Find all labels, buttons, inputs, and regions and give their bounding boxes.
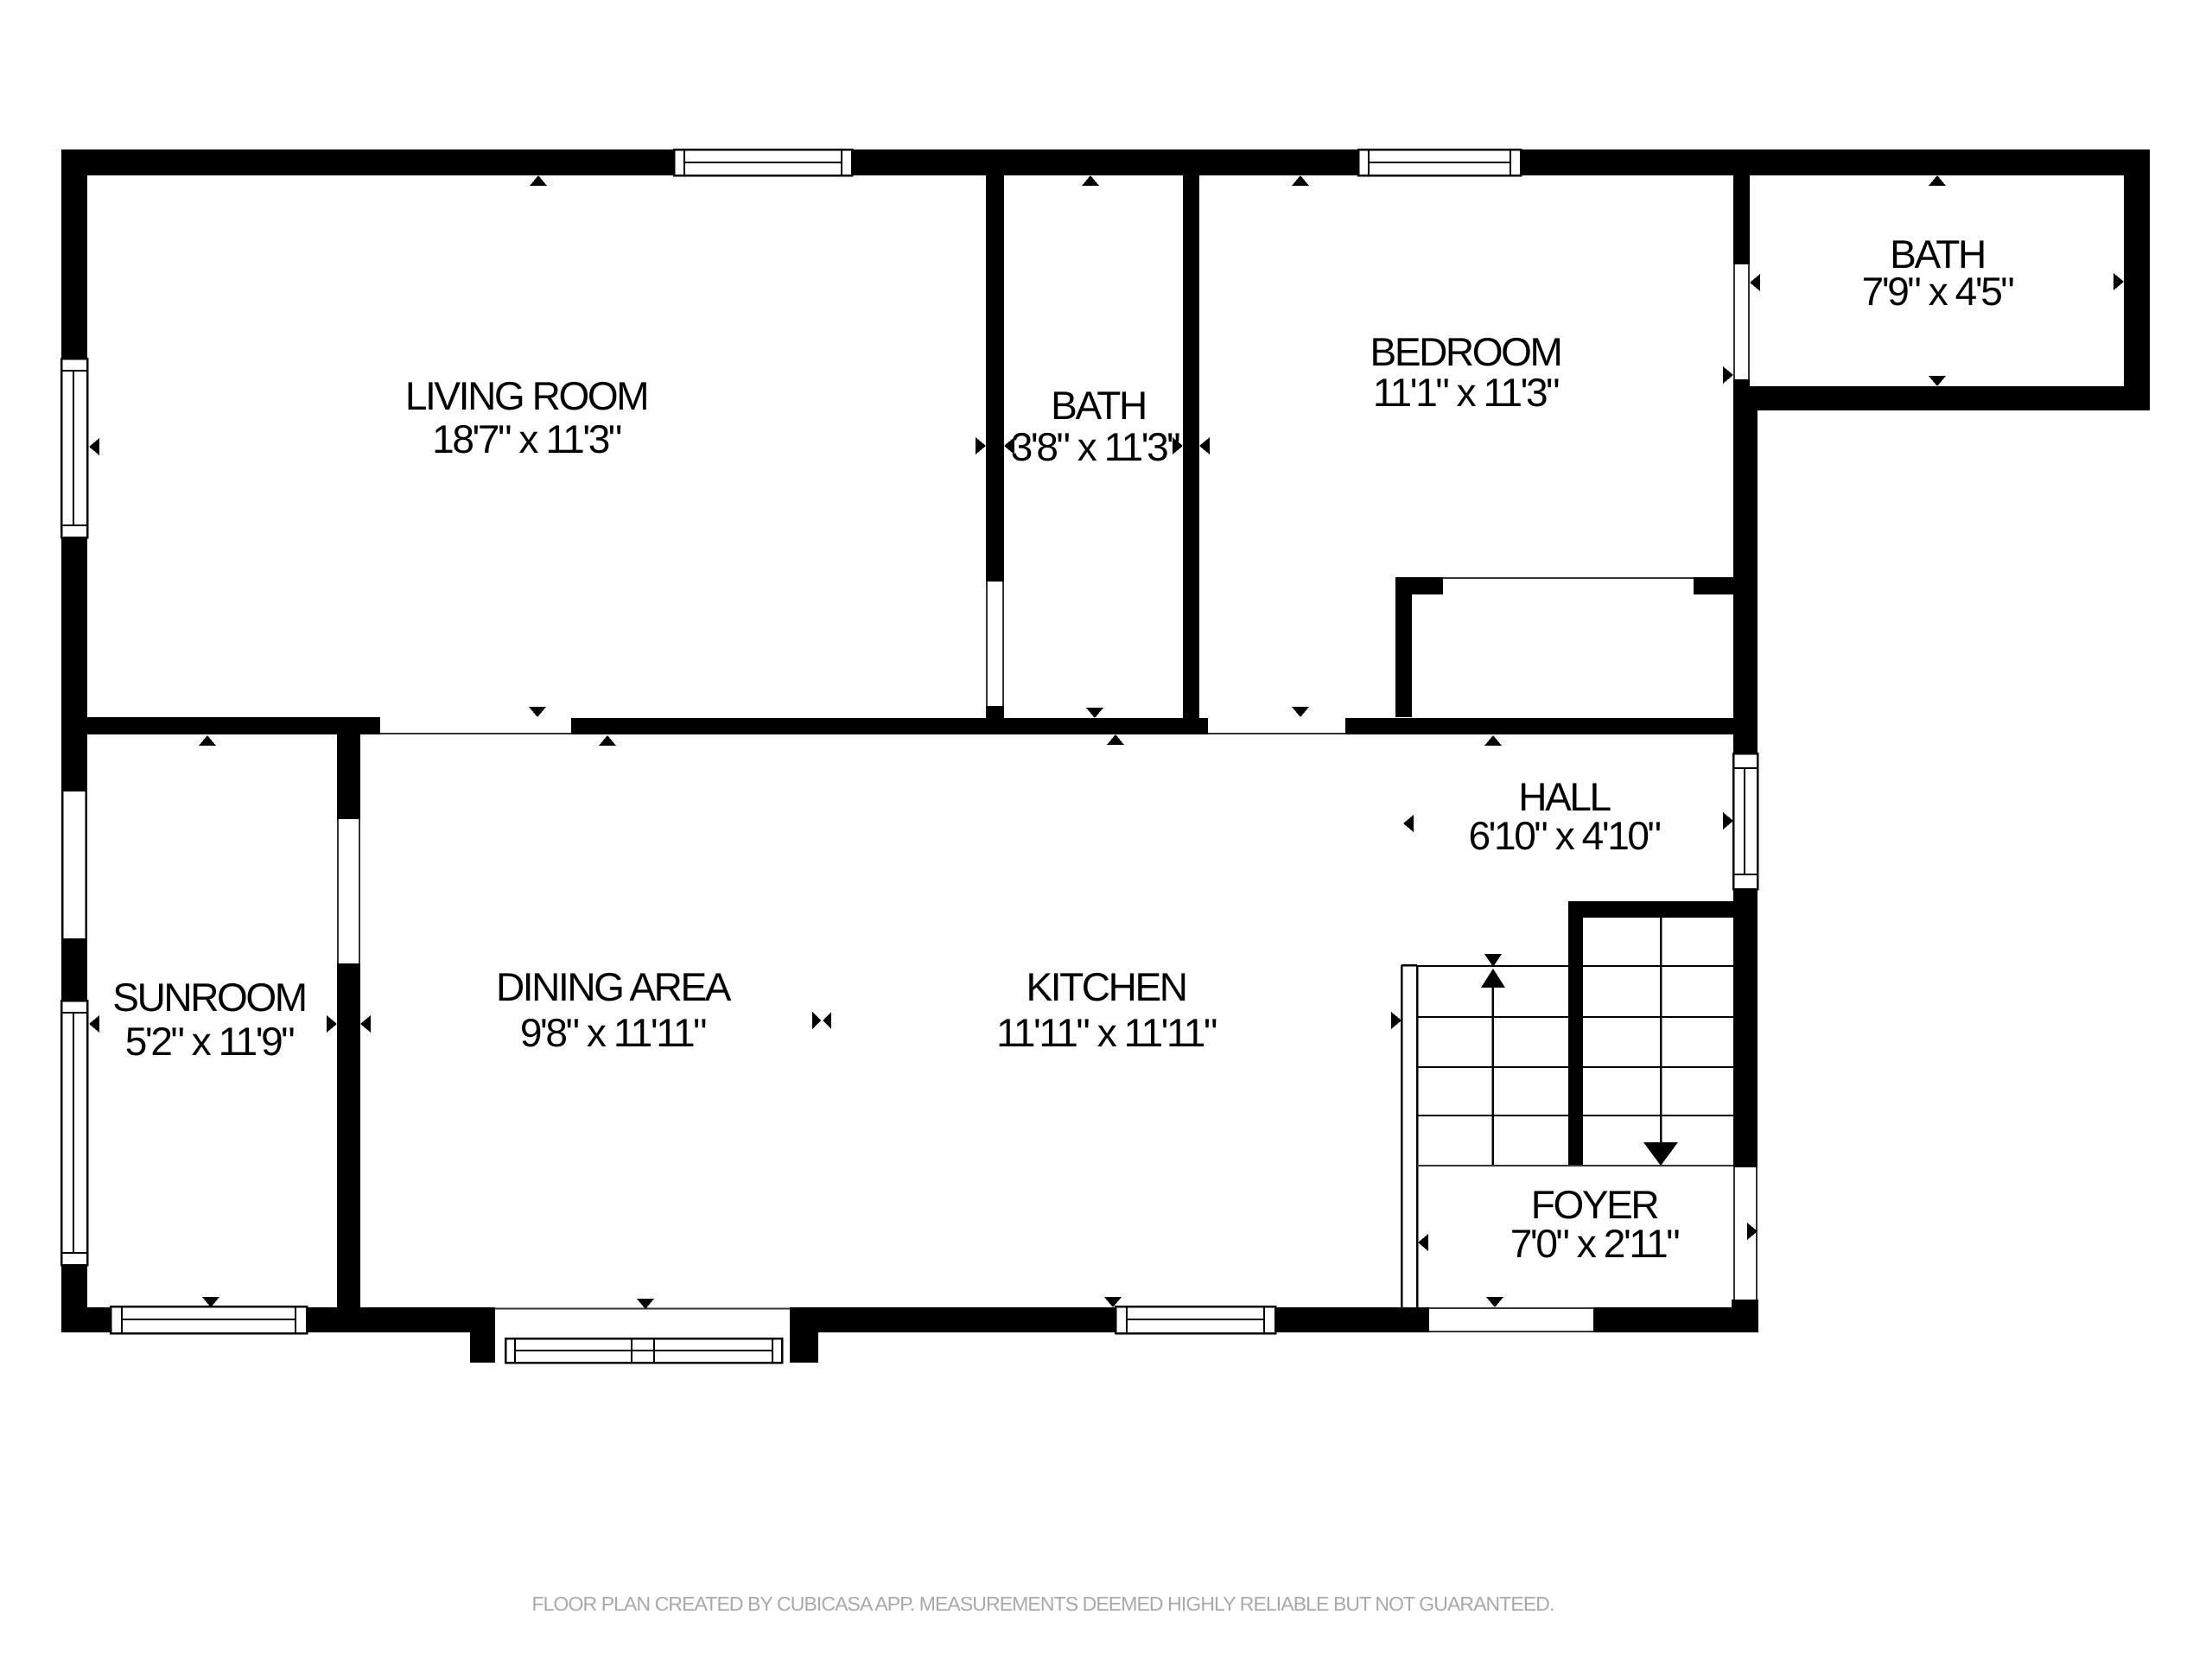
svg-text:SUNROOM: SUNROOM: [112, 975, 305, 1020]
svg-text:9'8" x 11'11": 9'8" x 11'11": [520, 1010, 706, 1055]
svg-text:FLOOR PLAN CREATED BY CUBICASA: FLOOR PLAN CREATED BY CUBICASA APP. MEAS…: [532, 1592, 1554, 1615]
svg-text:DINING AREA: DINING AREA: [496, 964, 732, 1009]
svg-text:BEDROOM: BEDROOM: [1370, 329, 1561, 374]
svg-text:11'1" x 11'3": 11'1" x 11'3": [1373, 370, 1559, 415]
svg-text:3'8" x 11'3": 3'8" x 11'3": [1011, 424, 1180, 469]
svg-text:7'9" x 4'5": 7'9" x 4'5": [1862, 269, 2014, 314]
svg-text:6'10" x 4'10": 6'10" x 4'10": [1468, 813, 1660, 858]
svg-text:KITCHEN: KITCHEN: [1026, 964, 1185, 1009]
svg-text:11'11" x 11'11": 11'11" x 11'11": [996, 1010, 1217, 1055]
svg-text:BATH: BATH: [1051, 383, 1146, 428]
svg-text:18'7" x 11'3": 18'7" x 11'3": [432, 416, 621, 461]
svg-text:LIVING ROOM: LIVING ROOM: [405, 373, 647, 418]
svg-text:7'0" x 2'11": 7'0" x 2'11": [1510, 1221, 1680, 1266]
svg-text:5'2" x 11'9": 5'2" x 11'9": [125, 1019, 295, 1064]
